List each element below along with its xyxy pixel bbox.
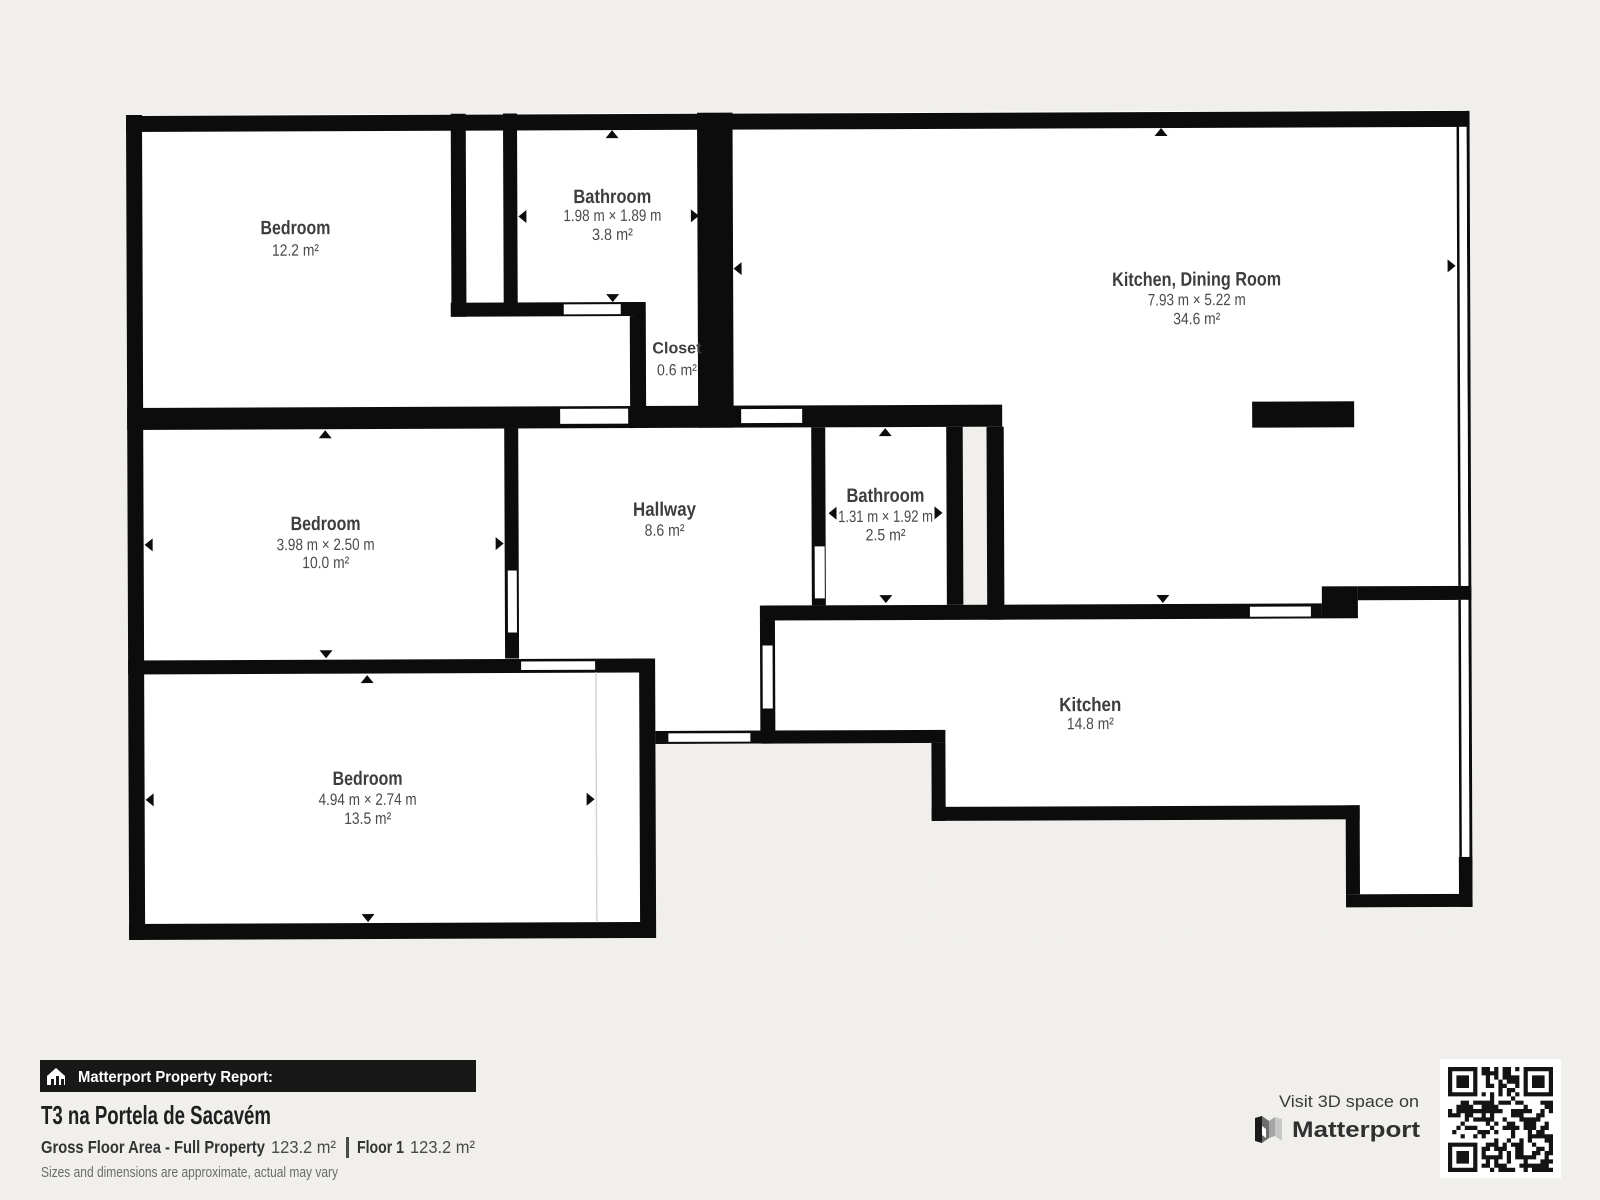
svg-text:14.8 m²: 14.8 m² [1067, 715, 1114, 733]
svg-text:Gross Floor Area - Full Proper: Gross Floor Area - Full Property [41, 1137, 265, 1157]
svg-text:12.2 m²: 12.2 m² [272, 242, 319, 260]
svg-text:Matterport Property Report:: Matterport Property Report: [78, 1069, 273, 1086]
svg-text:4.94 m × 2.74 m: 4.94 m × 2.74 m [319, 791, 417, 809]
svg-text:Matterport: Matterport [1292, 1117, 1421, 1142]
svg-text:34.6 m²: 34.6 m² [1173, 310, 1220, 328]
svg-text:123.2 m²: 123.2 m² [410, 1137, 475, 1157]
svg-text:Bathroom: Bathroom [846, 485, 924, 507]
svg-text:Bedroom: Bedroom [291, 513, 361, 535]
svg-text:Bathroom: Bathroom [573, 186, 651, 208]
svg-text:13.5 m²: 13.5 m² [344, 810, 391, 828]
svg-text:Floor 1: Floor 1 [357, 1137, 404, 1157]
svg-text:10.0 m²: 10.0 m² [302, 554, 349, 572]
svg-text:Sizes and dimensions are appro: Sizes and dimensions are approximate, ac… [41, 1164, 338, 1181]
svg-text:2.5 m²: 2.5 m² [866, 526, 906, 544]
svg-text:Closet: Closet [652, 340, 702, 357]
svg-text:Bedroom: Bedroom [333, 768, 403, 790]
svg-text:0.6 m²: 0.6 m² [657, 362, 698, 379]
svg-text:Bedroom: Bedroom [260, 217, 330, 239]
svg-text:Kitchen: Kitchen [1059, 694, 1121, 716]
svg-text:3.8 m²: 3.8 m² [592, 226, 634, 244]
svg-text:Kitchen, Dining Room: Kitchen, Dining Room [1112, 268, 1281, 291]
svg-text:123.2 m²: 123.2 m² [271, 1137, 336, 1157]
svg-text:1.98 m × 1.89 m: 1.98 m × 1.89 m [563, 207, 661, 225]
svg-text:7.93 m × 5.22 m: 7.93 m × 5.22 m [1148, 291, 1246, 309]
svg-text:Visit 3D space on: Visit 3D space on [1279, 1092, 1419, 1111]
svg-text:1.31 m × 1.92 m: 1.31 m × 1.92 m [838, 508, 933, 526]
svg-text:T3 na Portela de Sacavém: T3 na Portela de Sacavém [41, 1100, 271, 1130]
svg-text:3.98 m × 2.50 m: 3.98 m × 2.50 m [277, 536, 375, 554]
svg-text:Hallway: Hallway [633, 499, 696, 521]
svg-text:8.6 m²: 8.6 m² [645, 522, 685, 540]
